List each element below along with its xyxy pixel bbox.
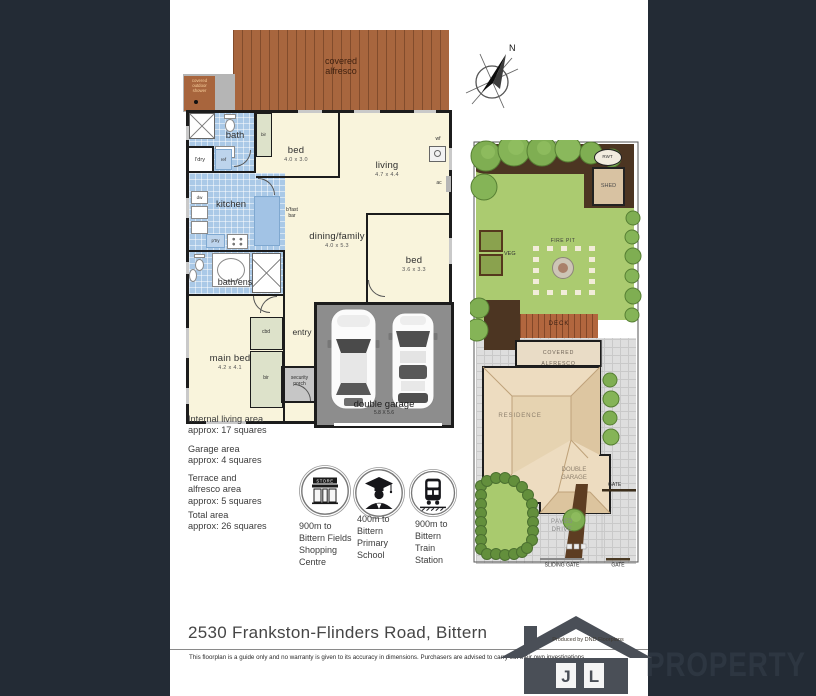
store-icon: STORE	[298, 464, 352, 518]
store-sign-label: STORE	[316, 478, 333, 483]
front-gate-bar	[606, 558, 630, 561]
covered-outdoor-shower: covered outdoor shower	[184, 76, 215, 111]
ensuite-label: bath/ens	[200, 277, 270, 287]
rainwater-tank: RWT	[594, 149, 622, 166]
window	[186, 388, 189, 404]
residence-label: RESIDENCE	[498, 412, 541, 419]
wall	[189, 294, 285, 296]
wall	[254, 113, 256, 172]
wood-fire-icon	[429, 146, 446, 162]
ac-unit	[446, 176, 451, 192]
window	[449, 148, 452, 170]
area-total-value: approx: 26 squares	[188, 521, 267, 532]
jl-property-logo: J L	[500, 616, 652, 696]
wall	[366, 213, 368, 312]
kitchen-label: kitchen	[203, 200, 259, 211]
brand-name: PROPERTY	[646, 646, 816, 685]
bushes-right	[603, 211, 641, 445]
laundry-label: l'dry	[189, 157, 211, 163]
fridge: ref	[215, 149, 232, 170]
area-garage-label: Garage area	[188, 444, 262, 455]
graduation-icon	[352, 466, 406, 520]
front-gate-label: GATE	[611, 563, 625, 569]
wall	[189, 171, 256, 173]
cupboard-label: cbd	[251, 330, 281, 336]
logo-letter-l: L	[589, 667, 599, 686]
produced-by-text: Produced by DND Floorplans	[542, 637, 634, 643]
ensuite-toilet-tank	[194, 254, 205, 258]
paved-drive-label-1: PAVED	[551, 519, 573, 525]
sliding-gate-label: SLIDING GATE	[545, 563, 580, 569]
area-internal-label: Internal living area	[188, 414, 267, 425]
sliding-gate-bar	[540, 558, 584, 560]
veg-bed	[479, 254, 503, 276]
bed2-label: bed3.6 x 3.3	[384, 238, 444, 291]
shed-label: SHED	[594, 183, 623, 189]
window	[449, 238, 452, 264]
pantry: p'try	[206, 234, 225, 248]
area-terrace-label: Terrace and alfresco area	[188, 473, 262, 495]
robe-main: bir	[250, 351, 283, 408]
side-gate-label: GATE	[608, 482, 622, 488]
ensuite-basin-icon	[189, 269, 197, 282]
wall	[338, 113, 340, 177]
cupboard: cbd	[250, 317, 283, 350]
site-garage-label-1: DOUBLE	[562, 467, 587, 473]
window	[186, 126, 189, 140]
amenity-school-text: 400m to Bittern Primary School	[357, 514, 390, 562]
amenity-shopping-text: 900m to Bittern Fields Shopping Centre	[299, 521, 352, 569]
wall	[189, 250, 285, 252]
window	[186, 198, 189, 218]
veg-label: VEG	[504, 251, 516, 257]
site-garage-label-2: GARAGE	[561, 475, 587, 481]
covered-outdoor-shower-label: covered outdoor shower	[184, 79, 215, 93]
window	[414, 110, 436, 113]
covered-alfresco-label: covered alfresco	[233, 56, 449, 76]
fire-pit-label: FIRE PIT	[551, 238, 576, 244]
covered-alfresco-area: covered alfresco	[233, 30, 449, 110]
living-label: living4.7 x 4.4	[352, 143, 422, 196]
compass-icon: N	[462, 40, 522, 110]
wall	[256, 176, 340, 178]
paved-drive-label-2: DRIVE	[552, 527, 573, 533]
side-gate-bar	[602, 489, 636, 492]
shed: SHED	[592, 167, 625, 206]
window	[186, 328, 189, 358]
window	[298, 110, 322, 113]
garage-door	[334, 423, 442, 426]
fire-pit: FIRE PIT	[533, 238, 595, 295]
window	[354, 110, 380, 113]
shower-head-dot	[194, 100, 198, 104]
ensuite-toilet-icon	[195, 259, 204, 271]
cooktop-icon	[227, 234, 248, 249]
bed1-label: bed4.0 x 3.0	[266, 128, 326, 181]
fridge-label: ref	[216, 157, 231, 162]
window	[186, 262, 189, 274]
amenity-train-text: 900m to Bittern Train Station	[415, 519, 448, 567]
page-title: 2530 Frankston-Flinders Road, Bittern	[188, 623, 508, 643]
wood-fire-label: wf	[430, 137, 446, 143]
wall	[283, 250, 285, 421]
logo-letter-j: J	[561, 667, 570, 686]
compass-north-label: N	[509, 43, 516, 53]
ac-label: ac	[432, 181, 446, 187]
wall	[366, 213, 452, 215]
robe-main-label: bir	[251, 376, 281, 382]
pantry-label: p'try	[207, 239, 224, 244]
bath-label: bath	[210, 131, 260, 142]
floorplan-page: covered alfresco covered outdoor shower …	[0, 0, 816, 696]
train-icon	[408, 468, 458, 518]
rainwater-tank-label: RWT	[595, 154, 620, 159]
laundry: l'dry	[189, 146, 214, 172]
area-total-label: Total area	[188, 510, 267, 521]
veg-bed	[479, 230, 503, 252]
garage-dims: 5.8 X 5.6	[324, 411, 444, 417]
oven-2	[191, 221, 208, 234]
area-total: Total areaapprox: 26 squares	[188, 499, 267, 544]
